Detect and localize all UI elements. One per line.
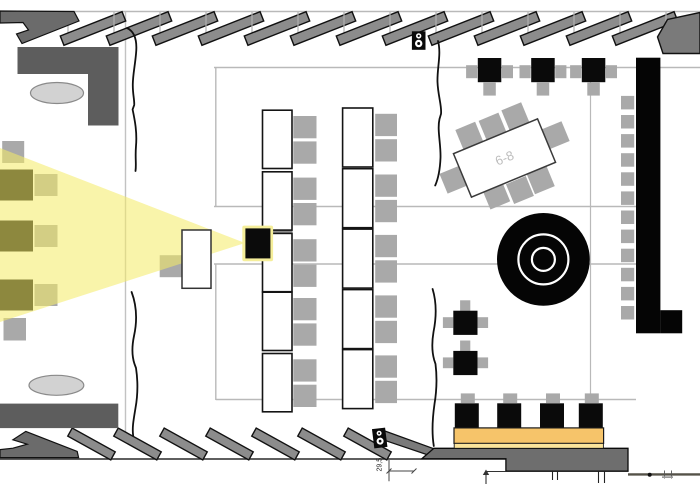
svg-text:29,5: 29,5	[377, 458, 384, 472]
